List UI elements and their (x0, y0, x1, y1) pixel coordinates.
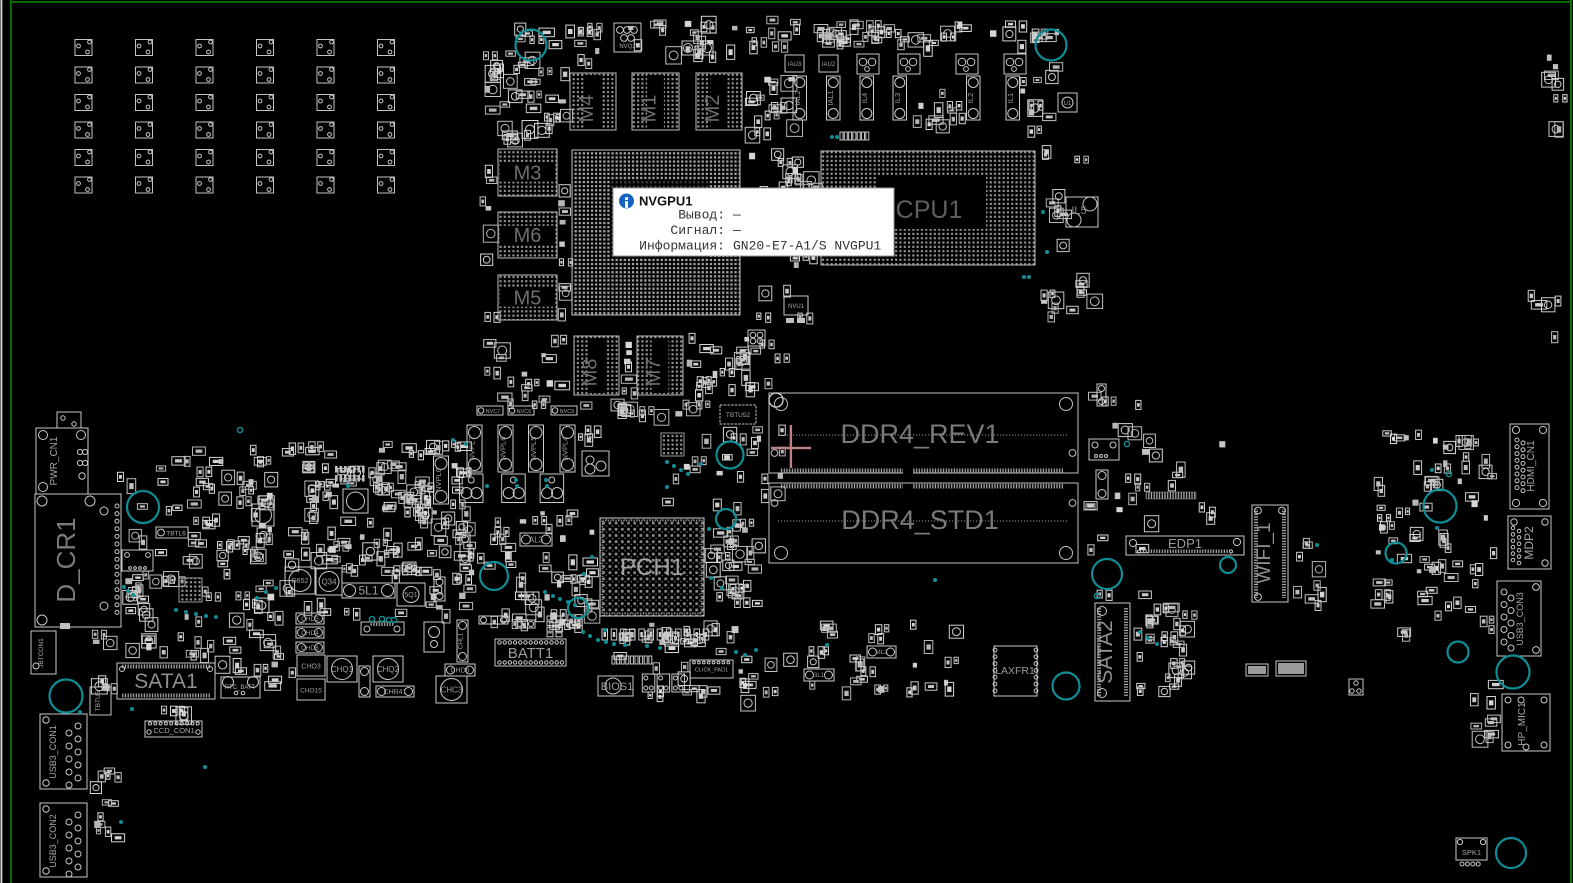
svg-text:Вывод:: Вывод: (678, 208, 725, 223)
svg-text:IL3: IL3 (893, 93, 902, 103)
svg-text:NVC6: NVC6 (517, 409, 532, 415)
svg-text:Информация:: Информация: (639, 239, 725, 254)
svg-text:M3: M3 (514, 163, 542, 185)
svg-text:NVPL5: NVPL5 (529, 437, 538, 461)
svg-text:NVGPU1: NVGPU1 (639, 194, 692, 209)
svg-text:PWR_CN1: PWR_CN1 (49, 436, 60, 485)
svg-text:3L1: 3L1 (814, 673, 825, 679)
svg-text:Сигнал:: Сигнал: (670, 223, 725, 238)
svg-text:CHD6: CHD6 (301, 645, 319, 652)
svg-text:TBTL6: TBTL6 (166, 531, 186, 538)
svg-text:DDR4_STD1: DDR4_STD1 (841, 505, 999, 535)
svg-text:CHQ1: CHQ1 (331, 665, 354, 674)
svg-text:CHQ2: CHQ2 (377, 665, 400, 674)
svg-text:CHO15: CHO15 (300, 688, 322, 695)
svg-text:IAU3: IAU3 (788, 62, 802, 68)
svg-text:M2: M2 (702, 95, 724, 123)
svg-text:IL1: IL1 (1006, 93, 1015, 103)
svg-text:USB3_CON1: USB3_CON1 (48, 725, 58, 779)
svg-text:NVC5: NVC5 (560, 409, 575, 415)
svg-text:CHL1: CHL1 (458, 632, 465, 649)
svg-text:CCD_CON1: CCD_CON1 (153, 726, 194, 735)
svg-text:EDP1: EDP1 (1168, 536, 1202, 551)
svg-text:SATA1: SATA1 (134, 670, 197, 693)
svg-text:LAXFR1: LAXFR1 (995, 665, 1035, 677)
svg-text:CHD6: CHD6 (450, 668, 469, 675)
svg-text:CHR41: CHR41 (384, 689, 407, 696)
svg-text:M5: M5 (514, 288, 542, 310)
svg-text:NVQ2: NVQ2 (619, 44, 636, 50)
svg-text:CHO3: CHO3 (301, 664, 321, 671)
svg-text:NVPL6: NVPL6 (434, 468, 443, 492)
svg-text:USB3_CON2: USB3_CON2 (48, 814, 58, 868)
svg-text:JBTCON1: JBTCON1 (38, 638, 45, 668)
svg-text:IL2: IL2 (966, 93, 975, 103)
svg-text:IL5: IL5 (1071, 205, 1086, 217)
svg-text:CPU1: CPU1 (896, 196, 963, 224)
svg-text:TBTU52: TBTU52 (726, 412, 751, 419)
svg-text:NVPL7: NVPL7 (468, 437, 477, 461)
svg-text:ML2: ML2 (876, 650, 888, 656)
svg-text:GN20-E7-A1/S NVGPU1: GN20-E7-A1/S NVGPU1 (733, 239, 881, 254)
svg-text:M4: M4 (576, 95, 598, 123)
svg-text:SPK1: SPK1 (1462, 848, 1481, 857)
svg-text:NVC7: NVC7 (486, 409, 501, 415)
svg-text:CHD4: CHD4 (301, 630, 319, 637)
svg-text:IAL2: IAL2 (793, 90, 802, 105)
svg-text:BATT1: BATT1 (508, 645, 554, 662)
svg-text:NVPL6: NVPL6 (499, 437, 508, 461)
svg-text:DDR4_REV1: DDR4_REV1 (840, 419, 999, 449)
svg-text:M1: M1 (639, 95, 661, 123)
svg-text:HP_MIC1: HP_MIC1 (1517, 702, 1528, 746)
svg-text:TBTU5: TBTU5 (95, 690, 102, 711)
svg-text:USB3_CON3: USB3_CON3 (1515, 592, 1525, 646)
svg-text:BIOS1: BIOS1 (601, 681, 633, 693)
svg-text:CLICK_PAD1: CLICK_PAD1 (695, 668, 728, 674)
svg-text:HDMI_CN1: HDMI_CN1 (1526, 440, 1537, 492)
svg-text:Q34: Q34 (321, 577, 337, 586)
svg-text:U1: U1 (1064, 101, 1072, 107)
svg-text:PCH1: PCH1 (620, 554, 684, 581)
svg-text:SATA2: SATA2 (1094, 620, 1117, 683)
svg-text:D_CR1: D_CR1 (51, 517, 81, 602)
svg-text:M8: M8 (580, 359, 602, 387)
svg-text:AL3: AL3 (529, 535, 544, 544)
svg-text:M7: M7 (643, 359, 665, 387)
svg-text:CHC3: CHC3 (441, 685, 463, 694)
svg-text:MDP2: MDP2 (1522, 526, 1536, 560)
svg-text:NVPL4: NVPL4 (561, 437, 570, 461)
svg-text:CHD5: CHD5 (301, 616, 319, 623)
svg-text:M6: M6 (514, 225, 542, 247)
svg-text:IAU2: IAU2 (822, 62, 836, 68)
svg-text:D652: D652 (292, 578, 309, 585)
svg-text:IAL1: IAL1 (826, 90, 835, 105)
svg-text:RTC_BATT: RTC_BATT (225, 685, 256, 691)
svg-text:NVU1: NVU1 (788, 304, 805, 310)
svg-text:5Q1: 5Q1 (404, 592, 417, 599)
svg-text:IL4: IL4 (860, 93, 869, 103)
svg-text:WIFI_1: WIFI_1 (1254, 522, 1275, 583)
svg-text:—: — (732, 223, 741, 238)
svg-text:—: — (732, 208, 741, 223)
svg-text:NVP1: NVP1 (688, 46, 706, 53)
svg-text:5L1: 5L1 (358, 584, 378, 598)
